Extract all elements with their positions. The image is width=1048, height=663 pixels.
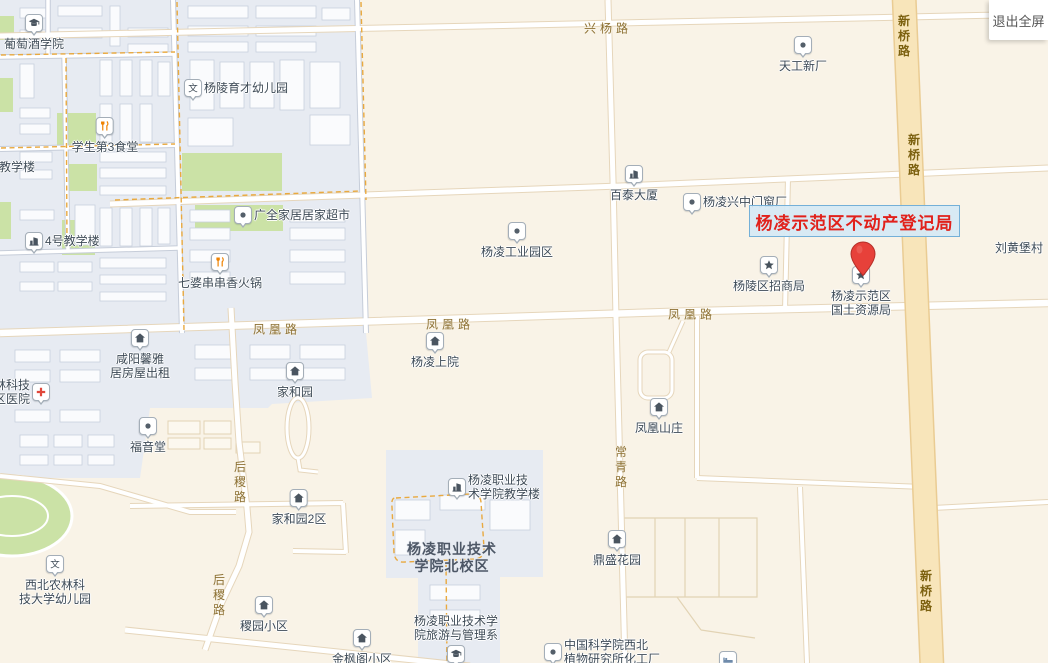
map-viewport[interactable]: 杨凌示范区不动产登记局 退出全屏 兴杨路新桥路新桥路新桥路凤凰路凤凰路凤凰路后稷… <box>0 0 1048 663</box>
poi-label: 院旅游与管理系 <box>414 628 498 642</box>
dot-icon <box>683 193 701 211</box>
road-name-label: 兴杨路 <box>584 20 632 37</box>
poi-label: 4号教学楼 <box>45 234 100 248</box>
restaurant-icon <box>211 253 229 271</box>
poi-hotel-partial[interactable] <box>719 651 737 663</box>
home-icon <box>290 489 308 507</box>
home-icon <box>650 398 668 416</box>
restaurant-icon <box>96 117 114 135</box>
poi-liuhuangbu-village[interactable]: 刘黄堡村 <box>995 241 1043 255</box>
road-name-label: 凤凰路 <box>668 306 716 323</box>
poi-label: 杨陵区招商局 <box>733 279 805 293</box>
stadium <box>0 476 72 556</box>
poi-label: 学生第3食堂 <box>72 140 139 154</box>
poi-xianyang-xinya-rental[interactable]: 咸阳馨雅居房屋出租 <box>110 329 170 380</box>
poi-label: 福音堂 <box>130 440 166 454</box>
poi-label: 居房屋出租 <box>110 366 170 380</box>
poi-label: 杨凌上院 <box>411 355 459 369</box>
poi-label: 教学楼 <box>0 160 35 174</box>
road-name-label: 凤凰路 <box>426 316 474 333</box>
gradcap-icon <box>447 645 465 663</box>
building-icon <box>625 165 643 183</box>
poi-dingsheng-garden[interactable]: 鼎盛花园 <box>593 530 641 567</box>
dot-icon <box>234 206 252 224</box>
home-icon <box>255 596 273 614</box>
dot-icon <box>139 417 157 435</box>
home-icon <box>608 530 626 548</box>
poi-label: 杨凌职业技术 <box>407 541 497 558</box>
poi-label: 七婆串串香火锅 <box>178 276 262 290</box>
wen-icon <box>184 79 202 97</box>
bed-icon <box>719 651 737 663</box>
poi-grape-wine-college[interactable]: 葡萄酒学院 <box>4 14 64 51</box>
poi-yangling-investment-bureau[interactable]: 杨陵区招商局 <box>733 256 805 293</box>
star-icon <box>760 256 778 274</box>
dot-icon <box>508 222 526 240</box>
poi-label: 杨凌工业园区 <box>481 245 553 259</box>
building-icon <box>448 478 466 496</box>
poi-fuyintang-church[interactable]: 福音堂 <box>130 417 166 454</box>
home-icon <box>131 329 149 347</box>
poi-label: 家和园 <box>277 385 313 399</box>
poi-district-hospital-partial[interactable]: 林科技区医院 <box>0 378 50 406</box>
poi-nwafu-kindergarten[interactable]: 西北农林科技大学幼儿园 <box>19 555 91 606</box>
road-name-label: 新桥路 <box>906 134 923 179</box>
poi-vocational-college-teaching-building[interactable]: 杨凌职业技术学院教学楼 <box>448 473 540 501</box>
poi-yangling-shangyuan[interactable]: 杨凌上院 <box>411 332 459 369</box>
poi-qipo-hotpot[interactable]: 七婆串串香火锅 <box>178 253 262 290</box>
dot-icon <box>544 643 562 661</box>
poi-label: 咸阳馨雅 <box>116 352 164 366</box>
poi-label: 学院北校区 <box>415 558 490 575</box>
exit-fullscreen-button[interactable]: 退出全屏 <box>989 0 1048 40</box>
poi-label: 杨凌职业技 <box>468 473 528 487</box>
road-name-label: 新桥路 <box>918 570 935 615</box>
poi-label: 金枫阁小区 <box>332 652 392 663</box>
home-icon <box>426 332 444 350</box>
wen-icon <box>46 555 64 573</box>
poi-label: 技大学幼儿园 <box>19 592 91 606</box>
highlighted-place-title: 杨凌示范区不动产登记局 <box>749 205 960 237</box>
poi-yangling-industrial-park[interactable]: 杨凌工业园区 <box>481 222 553 259</box>
poi-vocational-college-north-campus[interactable]: 杨凌职业技术学院北校区 <box>407 541 497 575</box>
gradcap-icon <box>25 14 43 32</box>
road-name-label: 后稷路 <box>232 461 249 506</box>
poi-label: 天工新厂 <box>779 59 827 73</box>
poi-yangling-yucai-kindergarten[interactable]: 杨陵育才幼儿园 <box>184 79 288 97</box>
poi-label: 鼎盛花园 <box>593 553 641 567</box>
poi-fenghuang-villa[interactable]: 凤凰山庄 <box>635 398 683 435</box>
poi-label: 葡萄酒学院 <box>4 37 64 51</box>
poi-label: 杨陵育才幼儿园 <box>204 81 288 95</box>
dot-icon <box>794 36 812 54</box>
poi-label: 杨凌职业技术学 <box>414 614 498 628</box>
parcel-grid <box>623 518 757 638</box>
poi-label: 百泰大厦 <box>610 188 658 202</box>
poi-label: 广全家居居家超市 <box>254 208 350 222</box>
major-road <box>904 0 932 663</box>
poi-label: 西北农林科 <box>25 578 85 592</box>
home-icon <box>286 362 304 380</box>
poi-label: 国土资源局 <box>831 303 891 317</box>
poi-teaching-building-4[interactable]: 4号教学楼 <box>25 232 100 250</box>
poi-student-canteen-3[interactable]: 学生第3食堂 <box>72 117 139 154</box>
poi-jiaheyuan[interactable]: 家和园 <box>277 362 313 399</box>
location-pin-icon[interactable] <box>850 241 876 282</box>
poi-jiaheyuan-2[interactable]: 家和园2区 <box>272 489 327 526</box>
poi-label: 区医院 <box>0 392 30 406</box>
poi-label: 杨凌示范区 <box>831 289 891 303</box>
road-name-label: 新桥路 <box>896 15 913 60</box>
poi-label: 中国科学院西北 <box>564 638 648 652</box>
road-name-label: 后稷路 <box>211 574 228 619</box>
road-name-label: 常青路 <box>613 446 630 491</box>
poi-label: 稷园小区 <box>240 619 288 633</box>
poi-label: 术学院教学楼 <box>468 487 540 501</box>
poi-jiyuan-community[interactable]: 稷园小区 <box>240 596 288 633</box>
poi-tourism-management-dept[interactable]: 杨凌职业技术学院旅游与管理系 <box>414 614 498 663</box>
road-name-label: 凤凰路 <box>253 321 301 338</box>
poi-label: 刘黄堡村 <box>995 241 1043 255</box>
poi-guangquan-home-supermarket[interactable]: 广全家居居家超市 <box>234 206 350 224</box>
poi-teaching-building-partial[interactable]: 教学楼 <box>0 160 35 174</box>
home-icon <box>353 629 371 647</box>
building-icon <box>25 232 43 250</box>
poi-jinfengge-community[interactable]: 金枫阁小区 <box>332 629 392 663</box>
parcel-outlines <box>168 421 260 453</box>
poi-label: 家和园2区 <box>272 512 327 526</box>
poi-label: 林科技 <box>0 378 30 392</box>
poi-tiangong-new-factory[interactable]: 天工新厂 <box>779 36 827 73</box>
poi-cas-northwest-botany-plant[interactable]: 中国科学院西北植物研究所化工厂 <box>544 638 660 663</box>
poi-label: 凤凰山庄 <box>635 421 683 435</box>
poi-baitai-building[interactable]: 百泰大厦 <box>610 165 658 202</box>
poi-label: 植物研究所化工厂 <box>564 652 660 663</box>
hospital-icon <box>32 383 50 401</box>
